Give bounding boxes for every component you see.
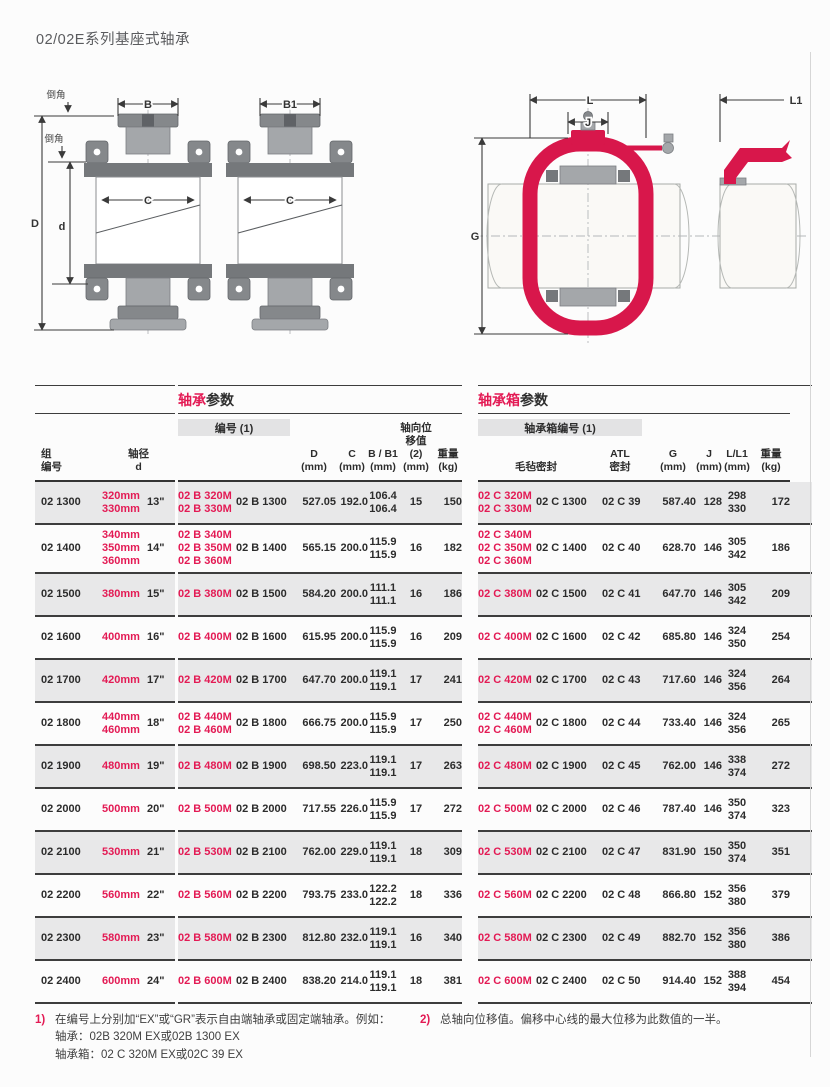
bearing-weight-cell: 250 <box>434 717 462 730</box>
housing-designation-header-zone: 轴承箱编号 (1) 毛毡密封 ATL密封 <box>478 414 650 480</box>
page-edge-line <box>810 52 811 1057</box>
housing-weight-cell: 454 <box>752 975 790 988</box>
axial-displacement-cell: 15 <box>398 496 434 509</box>
shaft-size-inch-cell: 20" <box>145 803 171 816</box>
housing-G-cell: 733.40 <box>650 717 696 730</box>
housing-atl-cell: 02 C 46 <box>598 803 650 816</box>
axial-displacement-cell: 16 <box>398 588 434 601</box>
shaft-header-title-spacer <box>35 386 175 414</box>
housing-weight-cell: 386 <box>752 932 790 945</box>
housing-J-cell: 146 <box>696 674 722 687</box>
housing-table-header: 轴承箱参数 轴承箱编号 (1) 毛毡密封 ATL密封 G(mm) <box>478 385 812 482</box>
housing-atl-cell: 02 C 41 <box>598 588 650 601</box>
bearing-B-B1-cell: 119.1119.1 <box>368 754 398 780</box>
housing-L-L1-cell: 350374 <box>722 797 752 823</box>
housing-G-cell: 866.80 <box>650 889 696 902</box>
axial-displacement-cell: 18 <box>398 846 434 859</box>
bearing-C-cell: 200.0 <box>336 631 368 644</box>
bearing-weight-cell: 263 <box>434 760 462 773</box>
housing-weight-cell: 272 <box>752 760 790 773</box>
shaft-size-inch-cell: 16" <box>145 631 171 644</box>
bearing-designation-inch-cell: 02 B 320M02 B 330M <box>178 490 236 516</box>
housing-atl-cell: 02 C 39 <box>598 496 650 509</box>
bearing-B-B1-cell: 119.1119.1 <box>368 668 398 694</box>
housing-felt-metric-cell: 02 C 2300 <box>536 932 598 945</box>
housing-felt-inch-cell: 02 C 440M02 C 460M <box>478 711 536 737</box>
housing-atl-cell: 02 C 45 <box>598 760 650 773</box>
bearing-C-cell: 200.0 <box>336 542 368 555</box>
housing-felt-inch-cell: 02 C 480M <box>478 760 536 773</box>
group-number-cell: 02 2000 <box>35 803 97 816</box>
bearing-designation-inch-cell: 02 B 500M <box>178 803 236 816</box>
bearing-D-cell: 647.70 <box>292 674 336 687</box>
housing-J-cell: 146 <box>696 803 722 816</box>
bearing-D-cell: 615.95 <box>292 631 336 644</box>
table-row: 02 1700 420mm 17" 02 B 420M 02 B 1700 64… <box>35 660 812 703</box>
group-number-header: 组编号 <box>35 414 102 480</box>
table-body: 02 1300 320mm330mm 13" 02 B 320M02 B 330… <box>35 482 812 1004</box>
group-number-cell: 02 2300 <box>35 932 97 945</box>
bearing-designation-inch-cell: 02 B 560M <box>178 889 236 902</box>
dim-label-G: G <box>471 231 480 243</box>
housing-felt-metric-cell: 02 C 2000 <box>536 803 598 816</box>
housing-J-cell: 150 <box>696 846 722 859</box>
bearing-D-cell: 698.50 <box>292 760 336 773</box>
housing-weight-cell: 265 <box>752 717 790 730</box>
bearing-D-cell: 584.20 <box>292 588 336 601</box>
dim-label-L1: L1 <box>790 95 803 107</box>
bearing-C-cell: 192.0 <box>336 496 368 509</box>
bearing-weight-cell: 150 <box>434 496 462 509</box>
housing-G-cell: 587.40 <box>650 496 696 509</box>
housing-atl-cell: 02 C 49 <box>598 932 650 945</box>
shaft-size-inch-cell: 24" <box>145 975 171 988</box>
bearing-designation-metric-cell: 02 B 1700 <box>236 674 292 687</box>
bearing-B-B1-cell: 119.1119.1 <box>368 926 398 952</box>
group-number-cell: 02 1800 <box>35 717 97 730</box>
bearing-C-cell: 226.0 <box>336 803 368 816</box>
housing-J-cell: 146 <box>696 631 722 644</box>
axial-displacement-cell: 17 <box>398 674 434 687</box>
bearing-designation-inch-cell: 02 B 530M <box>178 846 236 859</box>
col-header-bearing-weight: 重量(kg) <box>434 414 462 480</box>
housing-G-cell: 762.00 <box>650 760 696 773</box>
housing-G-cell: 628.70 <box>650 542 696 555</box>
shaft-size-mm-cell: 400mm <box>97 631 145 644</box>
housing-atl-cell: 02 C 48 <box>598 889 650 902</box>
bearing-designation-metric-cell: 02 B 1300 <box>236 496 292 509</box>
bearing-B-B1-cell: 122.2122.2 <box>368 883 398 909</box>
housing-G-cell: 914.40 <box>650 975 696 988</box>
bearing-D-cell: 527.05 <box>292 496 336 509</box>
shaft-size-inch-cell: 18" <box>145 717 171 730</box>
footnotes: 1) 在编号上分别加“EX”或“GR”表示自由端轴承或固定端轴承。例如：轴承：0… <box>35 1012 812 1064</box>
housing-L-L1-cell: 388394 <box>722 969 752 995</box>
bearing-designation-metric-cell: 02 B 1900 <box>236 760 292 773</box>
group-number-cell: 02 1300 <box>35 496 97 509</box>
housing-L-L1-cell: 298330 <box>722 490 752 516</box>
shaft-size-inch-cell: 23" <box>145 932 171 945</box>
bearing-designation-inch-cell: 02 B 340M02 B 350M02 B 360M <box>178 529 236 568</box>
bearing-weight-cell: 336 <box>434 889 462 902</box>
group-number-cell: 02 2100 <box>35 846 97 859</box>
bearing-weight-cell: 272 <box>434 803 462 816</box>
housing-J-cell: 128 <box>696 496 722 509</box>
group-number-cell: 02 1700 <box>35 674 97 687</box>
bearing-D-cell: 565.15 <box>292 542 336 555</box>
housing-table-title: 轴承箱参数 <box>478 386 790 414</box>
shaft-header-block: 组编号 轴径d <box>35 385 175 482</box>
bearing-B-B1-cell: 106.4106.4 <box>368 490 398 516</box>
shaft-size-inch-cell: 15" <box>145 588 171 601</box>
dim-label-B: B <box>144 99 152 111</box>
shaft-size-inch-cell: 22" <box>145 889 171 902</box>
group-number-cell: 02 1400 <box>35 542 97 555</box>
housing-weight-cell: 351 <box>752 846 790 859</box>
col-header-L-L1: L/L1(mm) <box>722 414 752 480</box>
bearing-designation-metric-cell: 02 B 1800 <box>236 717 292 730</box>
group-number-cell: 02 1600 <box>35 631 97 644</box>
shaft-size-mm-cell: 480mm <box>97 760 145 773</box>
col-header-C: C(mm) <box>336 414 368 480</box>
atl-seal-header: ATL密封 <box>594 448 646 474</box>
housing-felt-metric-cell: 02 C 2400 <box>536 975 598 988</box>
housing-weight-cell: 186 <box>752 542 790 555</box>
col-header-J: J(mm) <box>696 414 722 480</box>
bearing-C-cell: 229.0 <box>336 846 368 859</box>
shaft-size-mm-cell: 440mm460mm <box>97 711 145 737</box>
dim-label-D: D <box>31 218 39 230</box>
bearing-weight-cell: 182 <box>434 542 462 555</box>
bearing-cross-section-drawing: B B1 C C 倒角 倒角 D d <box>30 84 405 336</box>
col-header-housing-weight: 重量(kg) <box>752 414 790 480</box>
axial-displacement-cell: 17 <box>398 717 434 730</box>
housing-G-cell: 717.60 <box>650 674 696 687</box>
housing-felt-inch-cell: 02 C 420M <box>478 674 536 687</box>
catalog-page: 02/02E系列基座式轴承 <box>0 0 830 1087</box>
housing-G-cell: 882.70 <box>650 932 696 945</box>
housing-felt-inch-cell: 02 C 380M <box>478 588 536 601</box>
housing-L-L1-cell: 356380 <box>722 926 752 952</box>
bearing-designation-inch-cell: 02 B 480M <box>178 760 236 773</box>
housing-weight-cell: 379 <box>752 889 790 902</box>
housing-L-L1-cell: 305342 <box>722 582 752 608</box>
shaft-diameter-header: 轴径d <box>102 414 175 480</box>
dim-label-B1: B1 <box>283 99 297 111</box>
shaft-size-inch-cell: 17" <box>145 674 171 687</box>
bearing-D-cell: 717.55 <box>292 803 336 816</box>
housing-felt-metric-cell: 02 C 1600 <box>536 631 598 644</box>
housing-felt-metric-cell: 02 C 2200 <box>536 889 598 902</box>
dim-label-d: d <box>59 221 66 233</box>
shaft-size-mm-cell: 530mm <box>97 846 145 859</box>
bearing-designation-inch-cell: 02 B 380M <box>178 588 236 601</box>
bearing-designation-inch-cell: 02 B 600M <box>178 975 236 988</box>
bearing-B-B1-cell: 115.9115.9 <box>368 625 398 651</box>
housing-J-cell: 146 <box>696 760 722 773</box>
bearing-designation-metric-cell: 02 B 1500 <box>236 588 292 601</box>
bearing-B-B1-cell: 115.9115.9 <box>368 797 398 823</box>
housing-G-cell: 647.70 <box>650 588 696 601</box>
housing-J-cell: 152 <box>696 975 722 988</box>
group-number-cell: 02 1500 <box>35 588 97 601</box>
shaft-size-mm-cell: 340mm350mm360mm <box>97 529 145 568</box>
footnote-2-text: 总轴向位移值。偏移中心线的最大位移为此数值的一半。 <box>440 1012 728 1064</box>
bearing-designation-metric-cell: 02 B 2400 <box>236 975 292 988</box>
bearing-table-header: 轴承参数 编号 (1) D(mm) C(mm) B / B1(mm) <box>178 385 462 482</box>
housing-felt-inch-cell: 02 C 400M <box>478 631 536 644</box>
dim-label-J: J <box>585 117 591 129</box>
bearing-table-title: 轴承参数 <box>178 386 462 414</box>
bearing-designation-inch-cell: 02 B 400M <box>178 631 236 644</box>
housing-weight-cell: 254 <box>752 631 790 644</box>
axial-displacement-cell: 17 <box>398 803 434 816</box>
housing-J-cell: 152 <box>696 889 722 902</box>
housing-L-L1-cell: 350374 <box>722 840 752 866</box>
bearing-C-cell: 232.0 <box>336 932 368 945</box>
bearing-C-cell: 223.0 <box>336 760 368 773</box>
table-row: 02 2200 560mm 22" 02 B 560M 02 B 2200 79… <box>35 875 812 918</box>
bearing-designation-metric-cell: 02 B 2200 <box>236 889 292 902</box>
table-row: 02 1600 400mm 16" 02 B 400M 02 B 1600 61… <box>35 617 812 660</box>
bearing-D-cell: 666.75 <box>292 717 336 730</box>
housing-felt-metric-cell: 02 C 1900 <box>536 760 598 773</box>
housing-J-cell: 152 <box>696 932 722 945</box>
table-row: 02 1400 340mm350mm360mm 14" 02 B 340M02 … <box>35 525 812 574</box>
bearing-weight-cell: 340 <box>434 932 462 945</box>
housing-designation-header-box: 轴承箱编号 (1) <box>478 419 642 436</box>
shaft-size-inch-cell: 14" <box>145 542 171 555</box>
footnote-2-marker: 2) <box>420 1012 440 1064</box>
footnote-1-text: 在编号上分别加“EX”或“GR”表示自由端轴承或固定端轴承。例如：轴承：02B … <box>55 1012 397 1064</box>
end-cover <box>724 140 792 184</box>
housing-weight-cell: 323 <box>752 803 790 816</box>
bearing-designation-header-zone: 编号 (1) <box>178 414 292 480</box>
chamfer-label-inner: 倒角 <box>44 133 63 145</box>
tables-header: 组编号 轴径d 轴承参数 编号 (1) D(mm) <box>35 385 812 482</box>
bearing-B-B1-cell: 115.9115.9 <box>368 536 398 562</box>
table-row: 02 2300 580mm 23" 02 B 580M 02 B 2300 81… <box>35 918 812 961</box>
axial-displacement-cell: 16 <box>398 631 434 644</box>
axial-displacement-cell: 18 <box>398 889 434 902</box>
housing-L-L1-cell: 356380 <box>722 883 752 909</box>
bearing-D-cell: 762.00 <box>292 846 336 859</box>
housing-drawing: L J G L1 <box>468 82 813 350</box>
table-row: 02 1800 440mm460mm 18" 02 B 440M02 B 460… <box>35 703 812 746</box>
shaft-size-mm-cell: 380mm <box>97 588 145 601</box>
bearing-C-cell: 233.0 <box>336 889 368 902</box>
shaft-size-mm-cell: 580mm <box>97 932 145 945</box>
housing-atl-cell: 02 C 42 <box>598 631 650 644</box>
housing-weight-cell: 172 <box>752 496 790 509</box>
bearing-B-B1-cell: 119.1119.1 <box>368 840 398 866</box>
housing-felt-metric-cell: 02 C 1800 <box>536 717 598 730</box>
footnote-1-marker: 1) <box>35 1012 55 1064</box>
table-row: 02 1900 480mm 19" 02 B 480M 02 B 1900 69… <box>35 746 812 789</box>
bearing-B-B1-cell: 111.1111.1 <box>368 582 398 608</box>
shaft-size-mm-cell: 320mm330mm <box>97 490 145 516</box>
table-row: 02 1500 380mm 15" 02 B 380M 02 B 1500 58… <box>35 574 812 617</box>
housing-atl-cell: 02 C 50 <box>598 975 650 988</box>
axial-displacement-cell: 18 <box>398 975 434 988</box>
chamfer-label-top: 倒角 <box>46 89 65 101</box>
housing-felt-metric-cell: 02 C 2100 <box>536 846 598 859</box>
housing-L-L1-cell: 305342 <box>722 536 752 562</box>
housing-felt-inch-cell: 02 C 530M <box>478 846 536 859</box>
col-header-axial-displacement: 轴向位移值 (2)(mm) <box>398 414 434 480</box>
bearing-C-cell: 200.0 <box>336 717 368 730</box>
housing-G-cell: 831.90 <box>650 846 696 859</box>
axial-displacement-cell: 16 <box>398 542 434 555</box>
bearing-designation-inch-cell: 02 B 440M02 B 460M <box>178 711 236 737</box>
bearing-B-B1-cell: 115.9115.9 <box>368 711 398 737</box>
page-title: 02/02E系列基座式轴承 <box>36 28 190 49</box>
bearing-weight-cell: 209 <box>434 631 462 644</box>
footnote-1: 1) 在编号上分别加“EX”或“GR”表示自由端轴承或固定端轴承。例如：轴承：0… <box>35 1012 397 1064</box>
bearing-C-cell: 200.0 <box>336 674 368 687</box>
bearing-designation-metric-cell: 02 B 1400 <box>236 542 292 555</box>
dim-label-C2: C <box>286 195 294 207</box>
col-header-B-B1: B / B1(mm) <box>368 414 398 480</box>
bearing-weight-cell: 241 <box>434 674 462 687</box>
housing-felt-inch-cell: 02 C 600M <box>478 975 536 988</box>
housing-L-L1-cell: 324350 <box>722 625 752 651</box>
housing-felt-inch-cell: 02 C 560M <box>478 889 536 902</box>
housing-weight-cell: 209 <box>752 588 790 601</box>
shaft-size-mm-cell: 600mm <box>97 975 145 988</box>
bearing-designation-inch-cell: 02 B 420M <box>178 674 236 687</box>
bearing-D-cell: 812.80 <box>292 932 336 945</box>
footnote-1-line2: 轴承箱：02 C 320M EX或02C 39 EX <box>55 1047 397 1064</box>
housing-felt-inch-cell: 02 C 340M02 C 350M02 C 360M <box>478 529 536 568</box>
table-row: 02 1300 320mm330mm 13" 02 B 320M02 B 330… <box>35 482 812 525</box>
table-row: 02 2400 600mm 24" 02 B 600M 02 B 2400 83… <box>35 961 812 1004</box>
shaft-size-mm-cell: 500mm <box>97 803 145 816</box>
housing-L-L1-cell: 338374 <box>722 754 752 780</box>
footnote-2: 2) 总轴向位移值。偏移中心线的最大位移为此数值的一半。 <box>420 1012 812 1064</box>
housing-J-cell: 146 <box>696 542 722 555</box>
axial-displacement-cell: 17 <box>398 760 434 773</box>
bearing-B-B1-cell: 119.1119.1 <box>368 969 398 995</box>
bearing-weight-cell: 309 <box>434 846 462 859</box>
housing-cap <box>571 130 605 145</box>
group-number-cell: 02 2400 <box>35 975 97 988</box>
axial-displacement-cell: 16 <box>398 932 434 945</box>
bearing-designation-metric-cell: 02 B 2100 <box>236 846 292 859</box>
table-row: 02 2000 500mm 20" 02 B 500M 02 B 2000 71… <box>35 789 812 832</box>
housing-J-cell: 146 <box>696 588 722 601</box>
housing-atl-cell: 02 C 44 <box>598 717 650 730</box>
col-header-D: D(mm) <box>292 414 336 480</box>
housing-G-cell: 685.80 <box>650 631 696 644</box>
housing-atl-cell: 02 C 43 <box>598 674 650 687</box>
shaft-size-inch-cell: 19" <box>145 760 171 773</box>
housing-atl-cell: 02 C 47 <box>598 846 650 859</box>
bearing-D-cell: 838.20 <box>292 975 336 988</box>
housing-felt-metric-cell: 02 C 1300 <box>536 496 598 509</box>
housing-felt-metric-cell: 02 C 1700 <box>536 674 598 687</box>
bearing-designation-metric-cell: 02 B 2300 <box>236 932 292 945</box>
bearing-designation-inch-cell: 02 B 580M <box>178 932 236 945</box>
felt-seal-header: 毛毡密封 <box>478 461 594 474</box>
housing-felt-inch-cell: 02 C 500M <box>478 803 536 816</box>
housing-weight-cell: 264 <box>752 674 790 687</box>
dim-label-L: L <box>587 95 594 107</box>
bearing-D-cell: 793.75 <box>292 889 336 902</box>
bearing-C-cell: 200.0 <box>336 588 368 601</box>
housing-L-L1-cell: 324356 <box>722 668 752 694</box>
housing-L-L1-cell: 324356 <box>722 711 752 737</box>
shaft-size-mm-cell: 420mm <box>97 674 145 687</box>
group-number-cell: 02 1900 <box>35 760 97 773</box>
shaft-size-mm-cell: 560mm <box>97 889 145 902</box>
housing-felt-metric-cell: 02 C 1400 <box>536 542 598 555</box>
bearing-designation-metric-cell: 02 B 2000 <box>236 803 292 816</box>
dim-label-C: C <box>144 195 152 207</box>
shaft-size-inch-cell: 13" <box>145 496 171 509</box>
col-header-G: G(mm) <box>650 414 696 480</box>
designation-header-box: 编号 (1) <box>178 419 290 436</box>
housing-felt-metric-cell: 02 C 1500 <box>536 588 598 601</box>
housing-felt-inch-cell: 02 C 320M02 C 330M <box>478 490 536 516</box>
table-row: 02 2100 530mm 21" 02 B 530M 02 B 2100 76… <box>35 832 812 875</box>
group-number-cell: 02 2200 <box>35 889 97 902</box>
parameter-tables: 组编号 轴径d 轴承参数 编号 (1) D(mm) <box>35 385 812 1004</box>
bearing-C-cell: 214.0 <box>336 975 368 988</box>
housing-atl-cell: 02 C 40 <box>598 542 650 555</box>
shaft-size-inch-cell: 21" <box>145 846 171 859</box>
housing-felt-inch-cell: 02 C 580M <box>478 932 536 945</box>
bearing-designation-metric-cell: 02 B 1600 <box>236 631 292 644</box>
tube-fitting <box>663 143 674 154</box>
footnote-1-line1: 在编号上分别加“EX”或“GR”表示自由端轴承或固定端轴承。例如：轴承：02B … <box>55 1012 397 1047</box>
bearing-weight-cell: 381 <box>434 975 462 988</box>
housing-J-cell: 146 <box>696 717 722 730</box>
housing-G-cell: 787.40 <box>650 803 696 816</box>
bearing-weight-cell: 186 <box>434 588 462 601</box>
